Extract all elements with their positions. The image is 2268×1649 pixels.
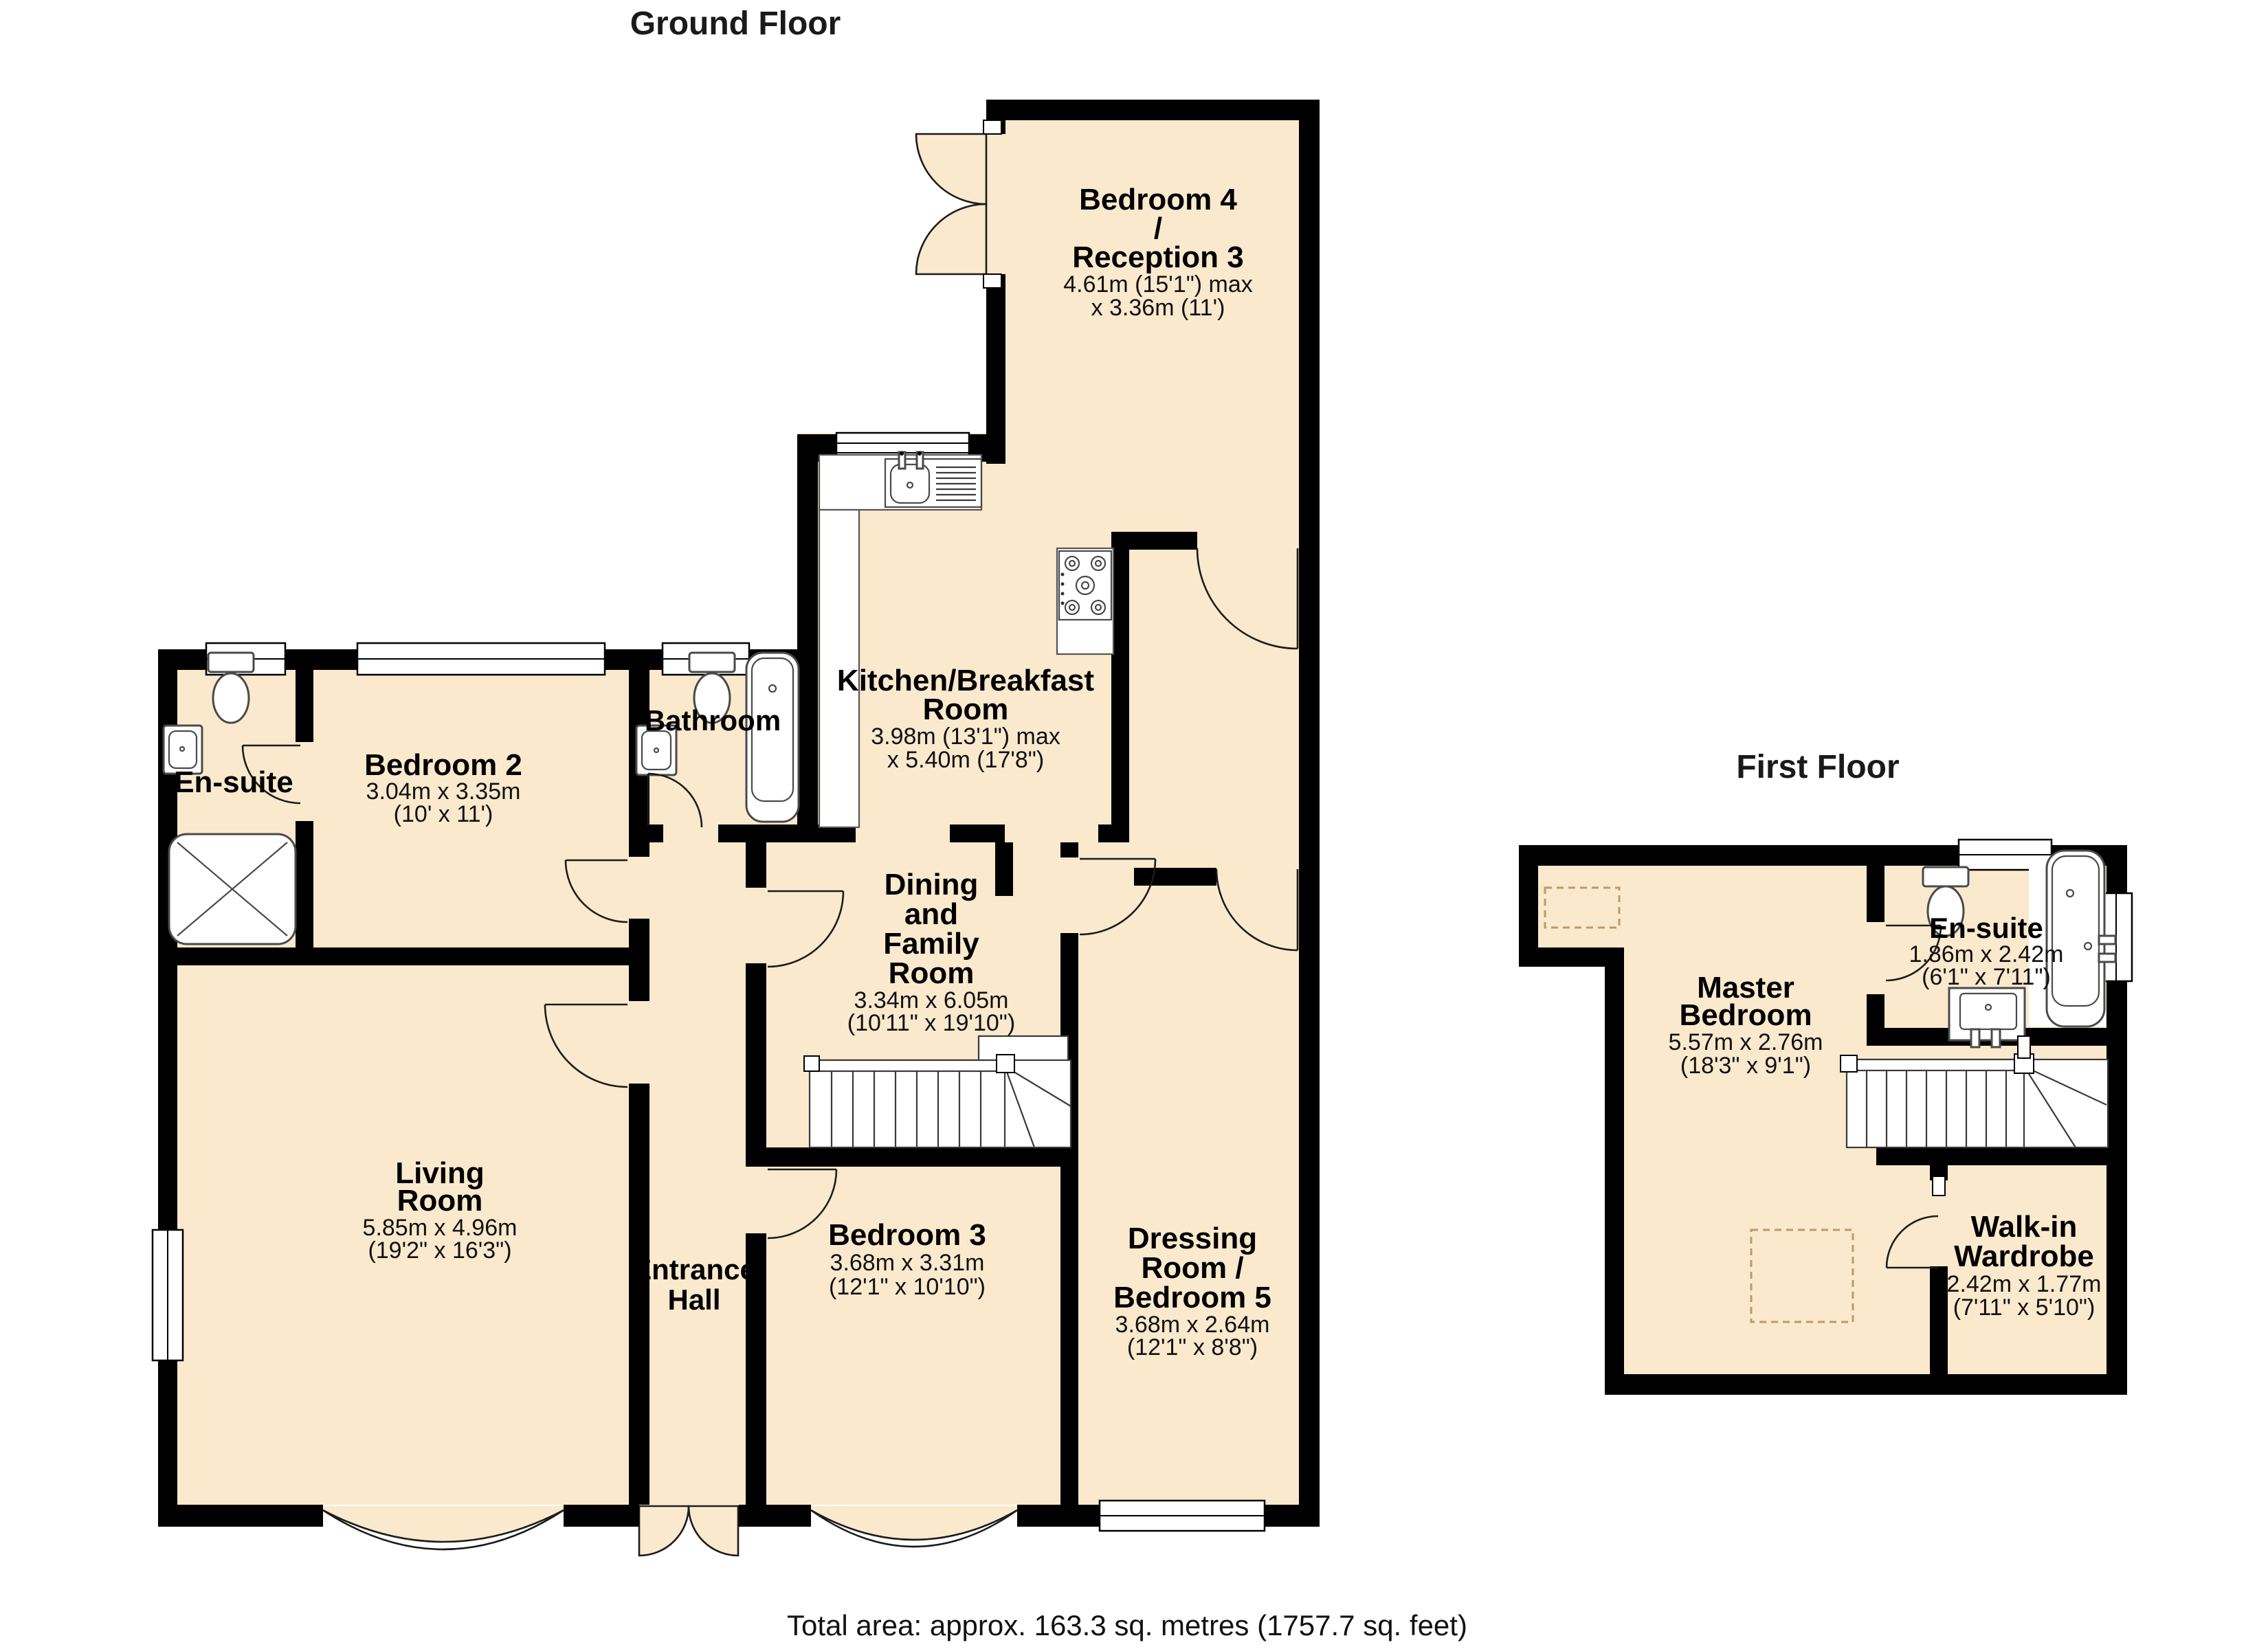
svg-text:3.98m (13'1") max: 3.98m (13'1") max: [871, 723, 1060, 750]
label-bedroom-4: Bedroom 4 / Reception 3 4.61m (15'1") ma…: [1063, 183, 1253, 321]
svg-text:Wardrobe: Wardrobe: [1954, 1239, 2094, 1273]
svg-text:Dining: Dining: [885, 868, 979, 901]
svg-text:Entrance: Entrance: [632, 1253, 756, 1286]
bedroom3-bay-window: [811, 1506, 1017, 1547]
svg-text:Reception 3: Reception 3: [1072, 240, 1243, 274]
svg-text:Bedroom 5: Bedroom 5: [1113, 1281, 1271, 1314]
label-dressing-room: Dressing Room / Bedroom 5 3.68m x 2.64m …: [1113, 1222, 1271, 1360]
svg-text:Dressing: Dressing: [1128, 1222, 1257, 1255]
svg-text:(7'11" x 5'10"): (7'11" x 5'10"): [1953, 1294, 2095, 1321]
svg-text:Hall: Hall: [667, 1283, 720, 1316]
door-jamb: [983, 120, 1001, 134]
floor-plan: Ground Floor First Floor Bedroom 4 / Rec…: [0, 0, 2268, 1649]
svg-text:Bedroom: Bedroom: [1679, 998, 1812, 1032]
living-room-side-window: [153, 1230, 183, 1360]
svg-text:Walk-in: Walk-in: [1971, 1210, 2078, 1244]
svg-text:(19'2" x 16'3"): (19'2" x 16'3"): [368, 1237, 511, 1264]
first-ensuite-sink-icon: [1949, 988, 2025, 1047]
label-bathroom: Bathroom: [645, 704, 781, 737]
ground-floor-title: Ground Floor: [630, 5, 841, 42]
first-ensuite-bathtub-icon: [2047, 851, 2115, 1027]
first-floor-title: First Floor: [1736, 749, 1899, 785]
bathroom-bathtub-icon: [746, 653, 799, 822]
svg-text:x 3.36m (11'): x 3.36m (11'): [1091, 295, 1225, 321]
svg-text:x 5.40m (17'8"): x 5.40m (17'8"): [887, 747, 1044, 773]
label-first-ensuite: En-suite 1.86m x 2.42m (6'1" x 7'11"): [1909, 912, 2064, 990]
dressing-room-window: [1100, 1501, 1265, 1531]
svg-text:and: and: [904, 897, 958, 931]
bedroom4-french-doors: [916, 134, 986, 274]
svg-text:(10' x 11'): (10' x 11'): [394, 801, 493, 827]
svg-text:2.42m x 1.77m: 2.42m x 1.77m: [1947, 1271, 2102, 1297]
svg-text:(12'1" x 10'10"): (12'1" x 10'10"): [829, 1274, 986, 1300]
svg-text:(10'11" x 19'10"): (10'11" x 19'10"): [847, 1010, 1015, 1036]
svg-text:Room: Room: [397, 1184, 483, 1218]
bedroom2-window: [357, 643, 605, 675]
label-ensuite: En-suite: [174, 765, 293, 799]
shower-icon: [169, 834, 296, 944]
door-jamb: [983, 274, 1001, 288]
first-ensuite-top-window: [1959, 840, 2052, 870]
svg-text:Room: Room: [923, 693, 1009, 726]
svg-text:Room: Room: [889, 956, 975, 990]
living-room-bay-window: [323, 1506, 564, 1549]
svg-text:(6'1" x 7'11"): (6'1" x 7'11"): [1922, 964, 2051, 990]
total-area-text: Total area: approx. 163.3 sq. metres (17…: [787, 1609, 1467, 1641]
svg-text:En-suite: En-suite: [1929, 912, 2043, 944]
front-door-icon: [639, 1506, 738, 1556]
label-bedroom-3: Bedroom 3 3.68m x 3.31m (12'1" x 10'10"): [828, 1218, 986, 1300]
svg-text:Bedroom 3: Bedroom 3: [828, 1218, 986, 1252]
svg-text:(18'3" x 9'1"): (18'3" x 9'1"): [1680, 1053, 1811, 1079]
svg-text:Family: Family: [883, 927, 979, 961]
svg-text:3.68m x 3.31m: 3.68m x 3.31m: [830, 1250, 985, 1276]
svg-text:(12'1" x 8'8"): (12'1" x 8'8"): [1127, 1334, 1258, 1360]
svg-text:5.57m x 2.76m: 5.57m x 2.76m: [1669, 1029, 1823, 1055]
svg-text:4.61m (15'1") max: 4.61m (15'1") max: [1063, 271, 1253, 298]
svg-text:Bedroom 2: Bedroom 2: [364, 748, 522, 782]
svg-text:Room /: Room /: [1141, 1251, 1243, 1285]
